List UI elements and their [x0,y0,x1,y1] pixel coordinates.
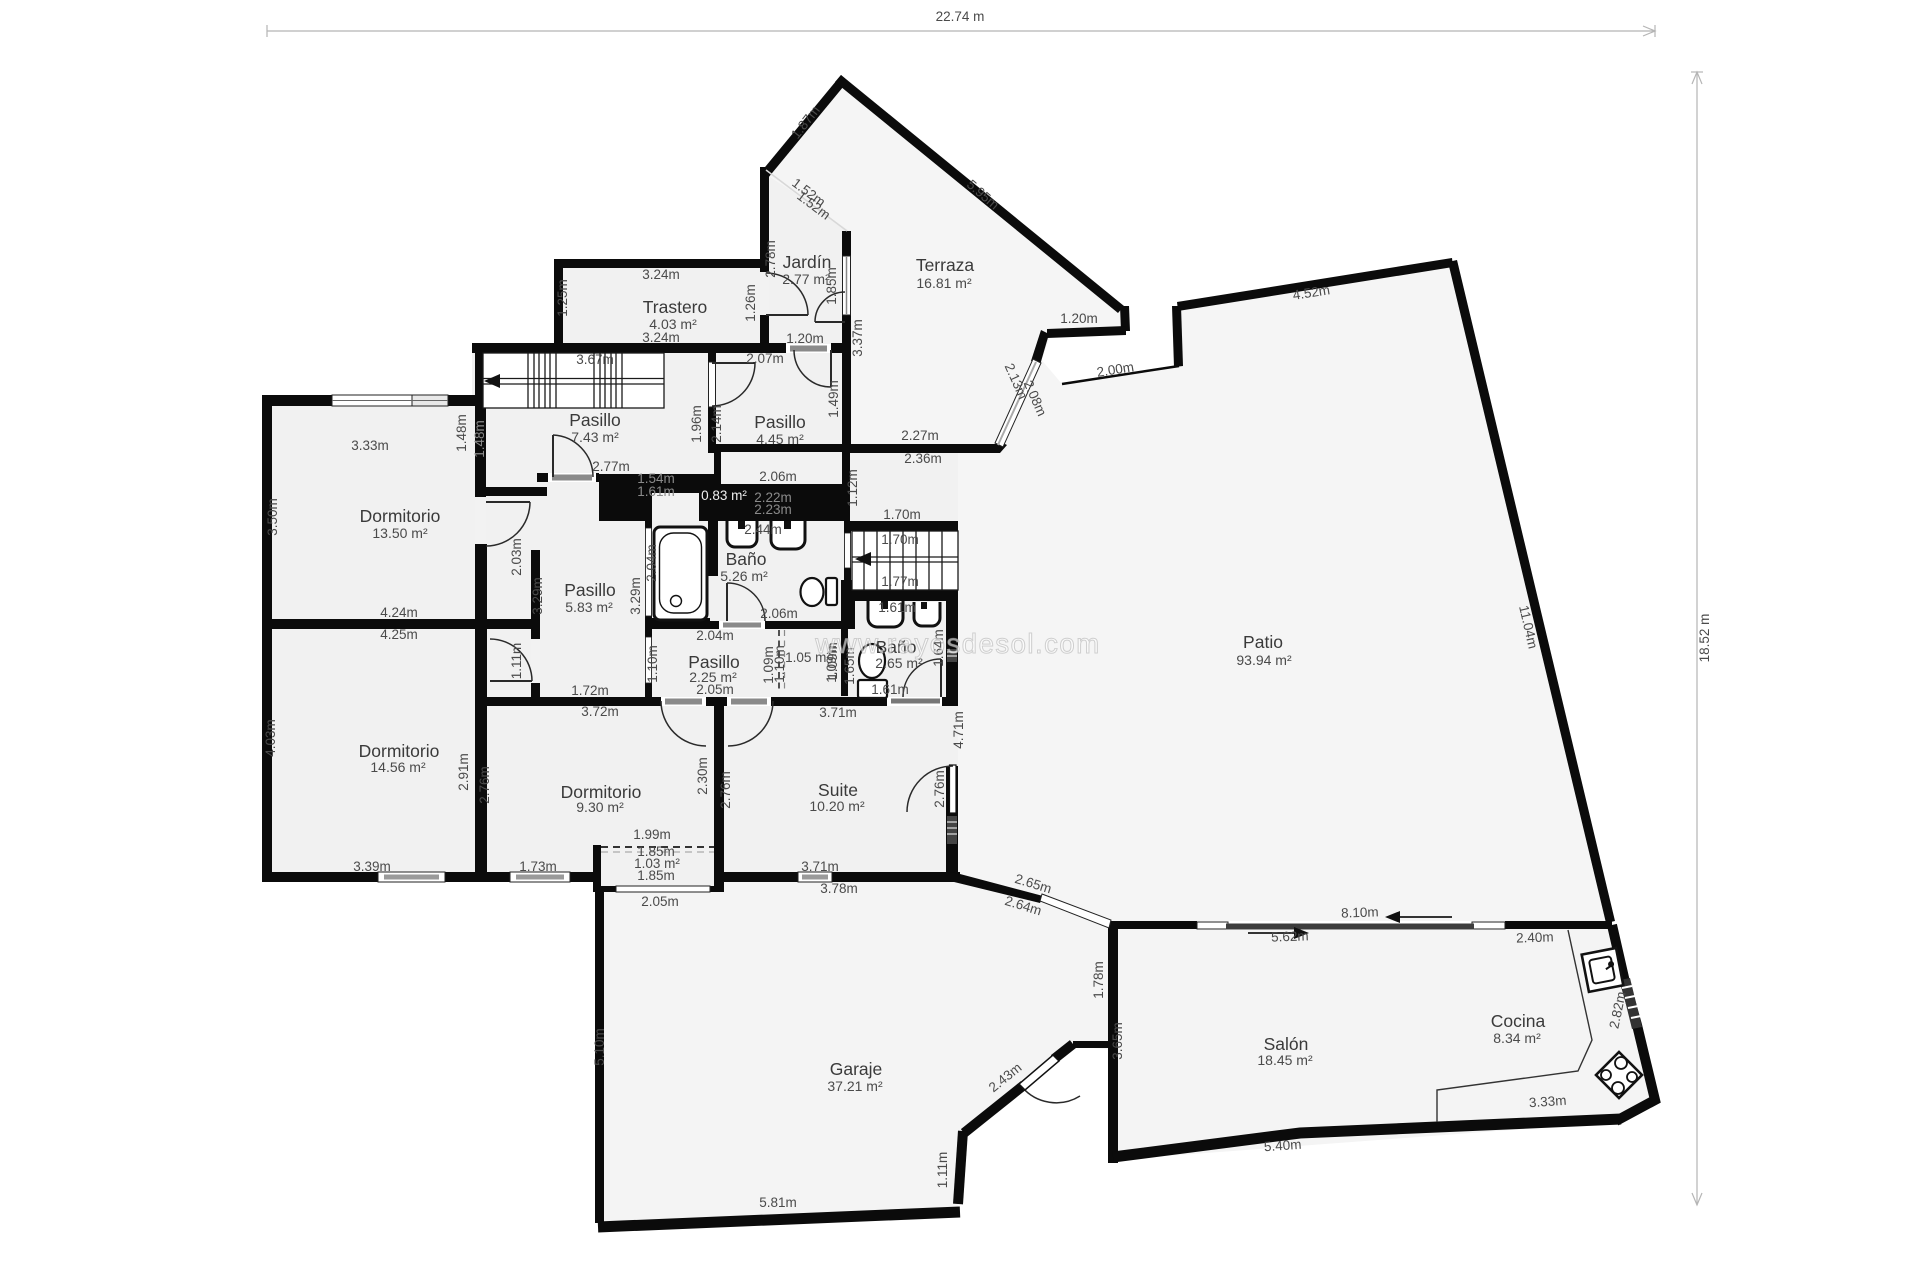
svg-text:3.50m: 3.50m [265,498,280,536]
svg-text:8.10m: 8.10m [1341,904,1379,920]
svg-text:3.78m: 3.78m [820,881,858,896]
svg-text:1.48m: 1.48m [472,420,487,458]
svg-text:1.72m: 1.72m [571,683,609,698]
svg-text:1.99m: 1.99m [633,827,671,842]
svg-text:2.76m: 2.76m [477,766,492,804]
svg-text:2.23m: 2.23m [754,502,792,517]
svg-text:7.43 m²: 7.43 m² [571,429,619,445]
svg-text:3.24m: 3.24m [642,267,680,282]
svg-text:1.61m: 1.61m [878,600,916,615]
svg-text:1.25m: 1.25m [555,279,570,317]
svg-text:2.76m: 2.76m [718,771,733,809]
svg-text:Salón: Salón [1264,1034,1309,1054]
svg-text:18.45 m²: 18.45 m² [1257,1052,1313,1068]
svg-text:Suite: Suite [818,780,858,800]
svg-text:Terraza: Terraza [916,255,975,275]
svg-text:3.71m: 3.71m [801,859,839,874]
svg-text:Dormitorio: Dormitorio [360,506,441,526]
svg-text:1.96m: 1.96m [689,405,704,443]
svg-text:4.03m: 4.03m [263,719,278,757]
svg-text:8.34 m²: 8.34 m² [1493,1030,1541,1046]
svg-text:5.10m: 5.10m [592,1028,607,1066]
svg-text:Baño: Baño [726,549,767,569]
svg-text:93.94 m²: 93.94 m² [1236,652,1292,668]
svg-text:1.10m: 1.10m [645,645,660,683]
svg-text:1.10m: 1.10m [772,645,787,683]
svg-text:Dormitorio: Dormitorio [359,741,440,761]
svg-text:Cocina: Cocina [1491,1011,1546,1031]
svg-text:2.03m: 2.03m [509,538,524,576]
svg-text:2.05m: 2.05m [696,682,734,697]
svg-text:18.52 m: 18.52 m [1697,614,1712,663]
svg-text:2.05m: 2.05m [641,894,679,909]
svg-text:5.83 m²: 5.83 m² [565,599,613,615]
svg-text:4.45 m²: 4.45 m² [756,431,804,447]
svg-text:5.81m: 5.81m [759,1195,797,1210]
svg-text:Pasillo: Pasillo [754,412,806,432]
svg-text:www.rayosdesol.com: www.rayosdesol.com [814,628,1100,659]
svg-text:2.77m: 2.77m [592,459,630,474]
svg-text:2.76m: 2.76m [932,770,947,808]
svg-text:3.33m: 3.33m [351,438,389,453]
svg-text:13.50 m²: 13.50 m² [372,525,428,541]
svg-text:10.20 m²: 10.20 m² [809,798,865,814]
svg-text:3.24m: 3.24m [642,330,680,345]
svg-text:3.67m: 3.67m [576,352,614,367]
svg-text:3.29m: 3.29m [530,577,545,615]
svg-text:14.56 m²: 14.56 m² [370,759,426,775]
svg-text:2.78m: 2.78m [763,240,778,278]
svg-text:Patio: Patio [1243,632,1283,652]
svg-text:1.11m: 1.11m [509,643,524,680]
svg-text:1.78m: 1.78m [1091,961,1106,999]
svg-text:2.14m: 2.14m [709,405,724,443]
svg-text:3.33m: 3.33m [1528,1093,1566,1111]
svg-text:3.29m: 3.29m [628,577,643,615]
svg-text:1.70m: 1.70m [883,507,921,522]
svg-text:2.91m: 2.91m [456,753,471,791]
svg-text:Garaje: Garaje [830,1059,883,1079]
svg-text:1.48m: 1.48m [454,414,469,452]
svg-text:0.83 m²: 0.83 m² [701,488,747,503]
svg-text:2.44m: 2.44m [744,522,782,537]
svg-text:2.06m: 2.06m [760,606,798,621]
svg-text:37.21 m²: 37.21 m² [827,1078,883,1094]
svg-text:1.20m: 1.20m [786,331,824,346]
svg-text:1.20m: 1.20m [1060,311,1098,326]
svg-text:1.70m: 1.70m [881,532,919,547]
svg-text:16.81 m²: 16.81 m² [916,275,972,291]
svg-text:2.07m: 2.07m [746,351,784,366]
svg-text:1.85m: 1.85m [637,868,675,883]
svg-text:5.26 m²: 5.26 m² [720,568,768,584]
svg-text:1.61m: 1.61m [637,484,675,499]
svg-text:9.30 m²: 9.30 m² [576,799,624,815]
svg-text:2.04m: 2.04m [644,544,659,582]
svg-text:2.27m: 2.27m [901,428,939,443]
svg-text:Trastero: Trastero [643,297,708,317]
svg-text:3.37m: 3.37m [850,319,865,357]
svg-text:1.49m: 1.49m [826,380,841,418]
svg-text:22.74 m: 22.74 m [936,9,985,24]
svg-text:4.25m: 4.25m [380,627,418,642]
svg-text:1.77m: 1.77m [881,574,919,589]
svg-text:2.36m: 2.36m [904,451,942,466]
svg-text:3.39m: 3.39m [353,859,391,874]
svg-text:2.30m: 2.30m [695,757,710,795]
svg-text:5.40m: 5.40m [1263,1137,1301,1155]
svg-text:1.12m: 1.12m [845,469,860,507]
svg-text:3.72m: 3.72m [581,704,619,719]
svg-text:Pasillo: Pasillo [569,410,621,430]
svg-text:2.77 m²: 2.77 m² [782,271,830,287]
svg-text:1.73m: 1.73m [519,859,557,874]
svg-text:Pasillo: Pasillo [564,580,616,600]
svg-text:3.71m: 3.71m [819,705,857,720]
svg-text:2.04m: 2.04m [696,628,734,643]
svg-text:1.85m: 1.85m [824,267,839,305]
svg-text:1.11m: 1.11m [935,1152,950,1189]
svg-text:1.26m: 1.26m [743,284,758,322]
svg-text:4.24m: 4.24m [380,605,418,620]
svg-text:2.06m: 2.06m [759,469,797,484]
svg-text:1.61m: 1.61m [871,682,909,697]
svg-text:3.65m: 3.65m [1110,1022,1125,1060]
svg-text:4.71m: 4.71m [951,711,966,749]
svg-text:5.62m: 5.62m [1271,928,1309,944]
svg-text:2.40m: 2.40m [1516,929,1554,945]
